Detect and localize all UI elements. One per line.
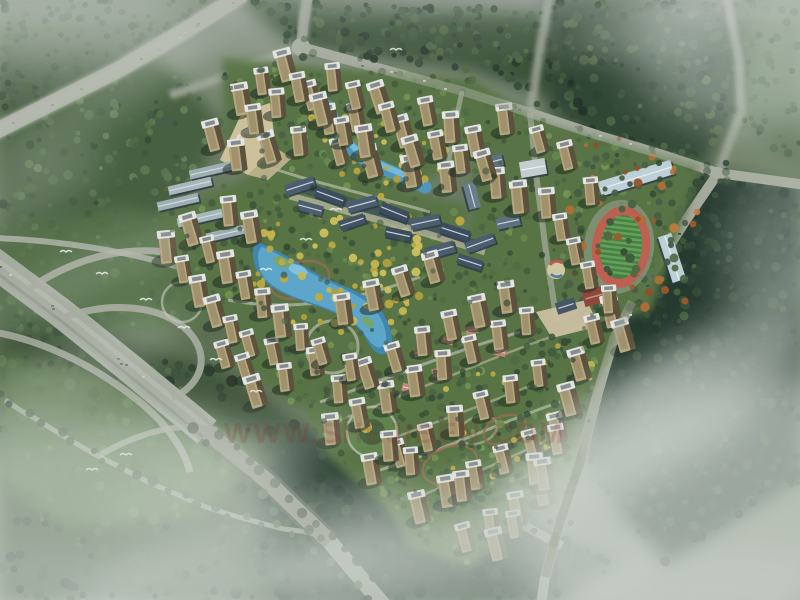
svg-text:WWW.SHEJIBEN.COM: WWW.SHEJIBEN.COM (224, 418, 565, 450)
